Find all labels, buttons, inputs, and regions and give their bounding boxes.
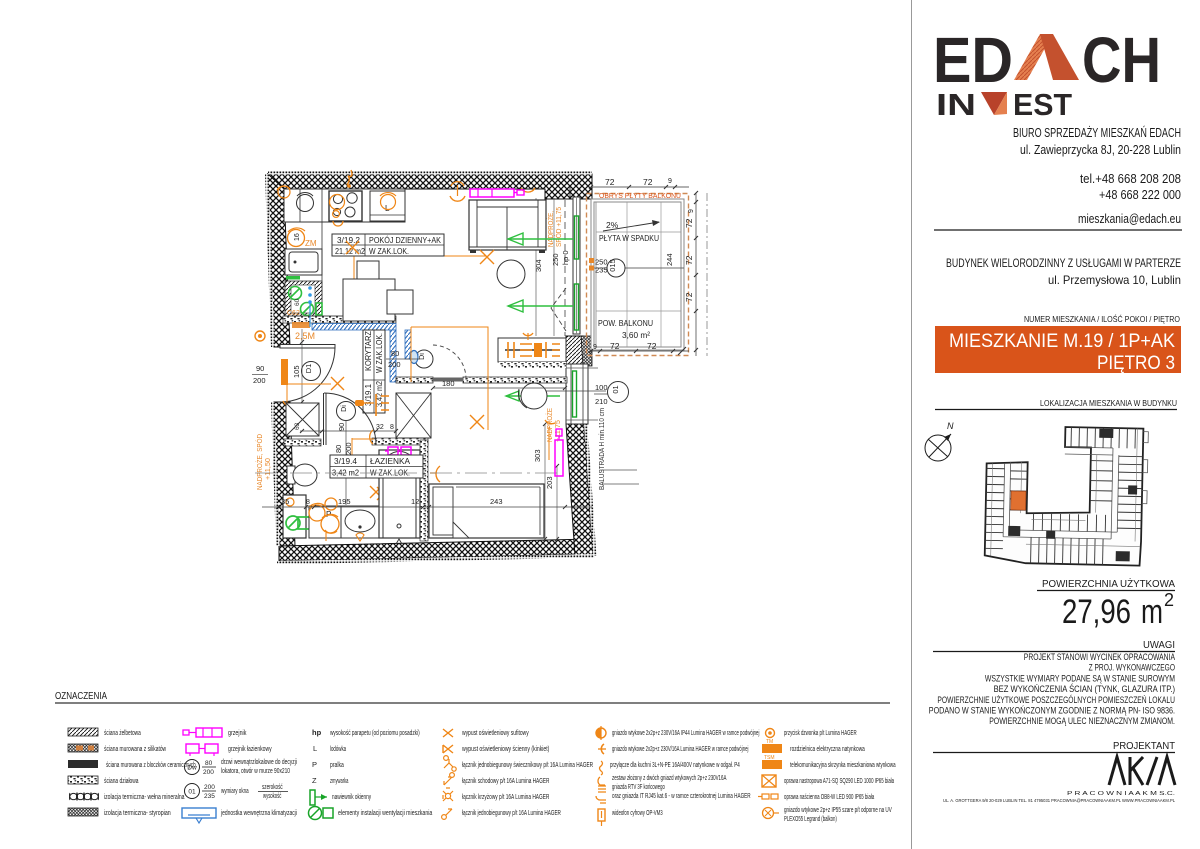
svg-text:243: 243 [490,497,503,506]
svg-text:ściana żelbetowa: ściana żelbetowa [104,730,141,737]
svg-text:Di: Di [419,353,426,360]
svg-text:L: L [385,204,390,213]
svg-text:Dw: Dw [187,765,197,772]
svg-text:PROJEKT STANOWI WYCINEK OPRACO: PROJEKT STANOWI WYCINEK OPRACOWANIA [1024,652,1175,662]
svg-text:hp: hp [312,728,322,737]
svg-text:zmywarka: zmywarka [330,778,348,785]
svg-text:lokatora, otwór w murze 90x210: lokatora, otwór w murze 90x210 [221,768,290,775]
svg-text:200: 200 [253,376,266,385]
svg-text:ul. Przemysłowa 10, Lublin: ul. Przemysłowa 10, Lublin [1048,273,1181,287]
svg-text:D1: D1 [304,364,313,374]
svg-text:W ZAK.LOK.: W ZAK.LOK. [369,246,409,256]
svg-text:Z: Z [312,776,317,785]
svg-text:elementy instalacji wentylacji: elementy instalacji wentylacji mieszkani… [338,810,432,817]
svg-text:przycisk dzwonka p/t Lumina HA: przycisk dzwonka p/t Lumina HAGER [784,730,857,737]
svg-text:PLEXO55 Legrand (balkon): PLEXO55 Legrand (balkon) [784,816,837,823]
svg-text:72: 72 [684,218,694,228]
svg-text:32: 32 [376,424,384,431]
svg-text:+11,50: +11,50 [265,458,272,480]
svg-text:12: 12 [411,497,419,506]
svg-text:3/19.4: 3/19.4 [334,456,357,466]
svg-text:304: 304 [534,259,543,272]
svg-text:L: L [313,744,317,753]
svg-text:łącznik jednobiegunowy p/t 16A: łącznik jednobiegunowy p/t 16A Lumina HA… [462,810,561,817]
svg-text:9: 9 [688,209,695,213]
svg-text:EST: EST [1013,87,1072,122]
svg-text:WSZYSTKIE WYMIARY PODANE SĄ W: WSZYSTKIE WYMIARY PODANE SĄ W STANIE SUR… [985,673,1175,683]
svg-text:235: 235 [595,266,608,275]
svg-text:POWIERZCHNIA UŻYTKOWA: POWIERZCHNIA UŻYTKOWA [1042,577,1175,590]
svg-text:BEZ WYKOŃCZENIA ŚCIAN (TYNK, G: BEZ WYKOŃCZENIA ŚCIAN (TYNK, GLAZURA ITP… [994,683,1175,694]
svg-text:W ZAK.LOK.: W ZAK.LOK. [375,333,384,373]
svg-text:9: 9 [668,178,672,185]
svg-text:180: 180 [442,379,455,388]
svg-text:LOKALIZACJA MIESZKANIA W BUDYN: LOKALIZACJA MIESZKANIA W BUDYNKU [1040,398,1177,408]
svg-text:NADPROŻE, SPÓD: NADPROŻE, SPÓD [255,434,264,490]
svg-text:BIURO SPRZEDAŻY MIESZKAŃ EDACH: BIURO SPRZEDAŻY MIESZKAŃ EDACH [1013,125,1181,140]
svg-text:wypust oświetleniowy ścienny (: wypust oświetleniowy ścienny (kinkiet) [461,746,549,753]
svg-text:grzejnik łazienkowy: grzejnik łazienkowy [228,746,272,753]
svg-text:PIĘTRO 3: PIĘTRO 3 [1097,353,1175,374]
svg-text:tel.+48 668 208 208: tel.+48 668 208 208 [1080,172,1181,186]
svg-text:9: 9 [593,344,597,351]
svg-text:+48 668 222 000: +48 668 222 000 [1099,188,1181,202]
svg-text:PROJEKTANT: PROJEKTANT [1113,740,1176,752]
svg-text:250: 250 [551,253,560,266]
svg-text:P R A C O W N I A A K M S.: P R A C O W N I A A K M S.C. [1067,791,1176,797]
svg-text:TM: TM [766,739,773,745]
svg-text:SPÓD +11,75: SPÓD +11,75 [554,207,563,247]
svg-text:gniazdo wtykowe 2p+z IP55 szar: gniazdo wtykowe 2p+z IP55 szare p/t odpo… [784,807,892,814]
svg-text:oprawa nastropowa A71-SQ SQ290: oprawa nastropowa A71-SQ SQ290 LED 1000 … [784,778,894,785]
svg-text:3,60 m²: 3,60 m² [622,330,650,340]
svg-text:NUMER MIESZKANIA / ILOŚĆ POKOI: NUMER MIESZKANIA / ILOŚĆ POKOI / PIĘTRO [1024,313,1180,324]
svg-text:gniazdo wtykowe 2x2p+z 230V/16: gniazdo wtykowe 2x2p+z 230V/16A IP44 Lum… [612,730,760,737]
svg-text:jednostka wewnętrzna klimatyza: jednostka wewnętrzna klimatyzacji [220,810,297,817]
svg-text:35: 35 [281,497,289,506]
svg-text:IN: IN [936,87,976,122]
svg-text:303: 303 [533,449,542,462]
svg-text:ŁAZIENKA: ŁAZIENKA [370,456,410,466]
svg-text:MIESZKANIE M.19 / 1P+AK: MIESZKANIE M.19 / 1P+AK [949,331,1175,352]
svg-text:8: 8 [390,424,394,431]
svg-text:POWIERZCHNIE MOGĄ ULEC NIEZNAC: POWIERZCHNIE MOGĄ ULEC NIEZNACZNYM ZMIAN… [989,716,1175,726]
svg-text:NADPROŻE,: NADPROŻE, [546,211,555,247]
svg-text:wysokość parapetu (od poziomu: wysokość parapetu (od poziomu posadzki) [329,730,419,737]
svg-text:ZM: ZM [305,239,317,248]
svg-text:01: 01 [611,385,620,393]
svg-text:3,42 m2: 3,42 m2 [332,468,359,478]
svg-text:pralka: pralka [330,762,344,769]
svg-text:izolacja termiczna- wełna mine: izolacja termiczna- wełna mineralna [104,794,185,801]
svg-text:72: 72 [610,341,620,351]
svg-text:KORYTARZ: KORYTARZ [364,331,373,371]
svg-text:72: 72 [643,177,653,187]
svg-text:nawiewnik okienny: nawiewnik okienny [332,794,371,801]
svg-text:wysokość: wysokość [262,793,281,800]
svg-text:rozdzielnica elektryczna natyn: rozdzielnica elektryczna natynkowa [790,746,865,753]
svg-text:72: 72 [647,341,657,351]
svg-text:izolacja termiczna- styropian: izolacja termiczna- styropian [104,810,171,817]
svg-text:16: 16 [294,233,301,241]
svg-text:POW. BALKONU: POW. BALKONU [598,318,653,328]
svg-text:72: 72 [684,292,694,302]
svg-text:203: 203 [545,476,554,489]
svg-text:gniazda RTV 3F końcowego: gniazda RTV 3F końcowego [612,784,665,791]
svg-text:01: 01 [188,789,196,796]
svg-text:drzwi wewnątrzlokalowe do decy: drzwi wewnątrzlokalowe do decyzji [221,759,297,766]
svg-text:105: 105 [292,365,301,378]
svg-text:ściana murowana z silikatów: ściana murowana z silikatów [104,746,167,753]
svg-text:UL. A. GROTTGERA 9/8 20-029 L: UL. A. GROTTGERA 9/8 20-029 LUBLIN TEL. … [943,798,1175,804]
svg-text:235: 235 [204,793,215,800]
svg-text:ul. Zawieprzycka 8J, 20-228 Lu: ul. Zawieprzycka 8J, 20-228 Lublin [1020,143,1181,157]
svg-text:BUDYNEK WIELORODZINNY Z USŁUGA: BUDYNEK WIELORODZINNY Z USŁUGAMI W PARTE… [946,256,1181,270]
svg-text:OBRYS PŁYTY BALKONU: OBRYS PŁYTY BALKONU [599,193,681,200]
svg-text:200: 200 [204,784,215,791]
svg-text:015: 015 [608,259,617,272]
svg-text:telekomunikacyjna skrzynka mie: telekomunikacyjna skrzynka mieszkaniowa … [790,762,896,769]
svg-text:210: 210 [595,397,608,406]
svg-text:Z PROJ. WYKONAWCZEGO: Z PROJ. WYKONAWCZEGO [1089,663,1175,673]
svg-text:łącznik jednobiegunowy świeczn: łącznik jednobiegunowy świecznikowy p/t … [462,762,593,769]
svg-text:oprawa naścienna OB8-W LED 900: oprawa naścienna OB8-W LED 900 IP65 biał… [784,794,874,801]
svg-text:P: P [312,760,317,769]
svg-text:27,96: 27,96 [1062,593,1131,631]
svg-text:ED: ED [933,24,1013,96]
svg-text:100: 100 [595,383,608,392]
svg-text:łącznik schodowy p/t 16A Lumi: łącznik schodowy p/t 16A Lumina HAGER [462,778,549,785]
svg-text:POWIERZCHNIE UŻYTKOWE POSZCZEG: POWIERZCHNIE UŻYTKOWE POSZCZEGÓLNYCH POM… [937,695,1175,705]
svg-text:m: m [1141,593,1163,631]
svg-text:OZNACZENIA: OZNACZENIA [55,691,107,702]
svg-text:zestaw złożony z dwóch gniazd: zestaw złożony z dwóch gniazd wtykowych … [612,775,727,782]
svg-text:grzejnik: grzejnik [228,730,247,737]
svg-text:lodówka: lodówka [330,746,346,753]
svg-text:2: 2 [1164,590,1174,610]
svg-text:UWAGI: UWAGI [1143,639,1175,651]
svg-text:ściana działowa: ściana działowa [104,778,139,785]
svg-text:łącznik krzyżowy p/t 16A Lumi: łącznik krzyżowy p/t 16A Lumina HAGER [462,794,549,801]
svg-text:wymiary okna: wymiary okna [220,788,248,795]
svg-text:szerokość: szerokość [262,784,283,791]
svg-text:60: 60 [294,298,301,306]
svg-text:21,12 m2: 21,12 m2 [335,246,365,256]
svg-text:W ZAK.LOK.: W ZAK.LOK. [370,468,410,478]
svg-text:244: 244 [665,253,674,266]
svg-text:PODANO W STANIE WYKOŃCZONYM ZG: PODANO W STANIE WYKOŃCZONYM ZGODNIE Z NO… [929,706,1175,716]
svg-text:2%: 2% [606,220,619,230]
svg-text:TSM: TSM [764,755,775,761]
svg-text:80: 80 [391,349,399,358]
svg-text:N: N [947,421,954,431]
svg-text:hp 0: hp 0 [561,250,570,265]
svg-text:2,5M: 2,5M [295,331,315,341]
svg-text:200: 200 [203,769,214,776]
svg-text:90: 90 [256,364,264,373]
svg-text:Di: Di [341,405,348,412]
svg-text:gniazdo wtykowe 2x2p+z 230V/16: gniazdo wtykowe 2x2p+z 230V/16A Lumina H… [612,746,749,753]
svg-text:PŁYTA W SPADKU: PŁYTA W SPADKU [599,233,659,243]
svg-text:POKÓJ DZIENNY+AK: POKÓJ DZIENNY+AK [369,235,441,245]
svg-text:ściana murowana z bloczków cer: ściana murowana z bloczków ceramicznych [106,762,196,769]
svg-text:80: 80 [334,445,343,453]
svg-text:72: 72 [605,177,615,187]
svg-text:mieszkania@edach.eu: mieszkania@edach.eu [1078,212,1181,226]
svg-text:oraz gniazda IT RJ45 kat.6 - w: oraz gniazda IT RJ45 kat.6 - w ramce czt… [612,793,751,800]
svg-text:przyłącze dla kuchni 3L+N-PE 1: przyłącze dla kuchni 3L+N-PE 16A/400V na… [610,762,740,769]
svg-text:195: 195 [338,497,351,506]
svg-text:8: 8 [306,499,310,506]
svg-text:90: 90 [337,423,346,431]
svg-text:63: 63 [294,422,301,430]
svg-text:CH: CH [1082,24,1161,96]
svg-text:200: 200 [388,360,401,369]
svg-text:80: 80 [205,760,213,767]
svg-text:BALUSTRADA H min.110 cm: BALUSTRADA H min.110 cm [597,408,606,490]
svg-text:wideofon cyfrowy OP-VM3: wideofon cyfrowy OP-VM3 [611,810,662,817]
svg-text:72: 72 [684,255,694,265]
svg-text:wypust oświetleniowy sufitowy: wypust oświetleniowy sufitowy [461,730,529,737]
